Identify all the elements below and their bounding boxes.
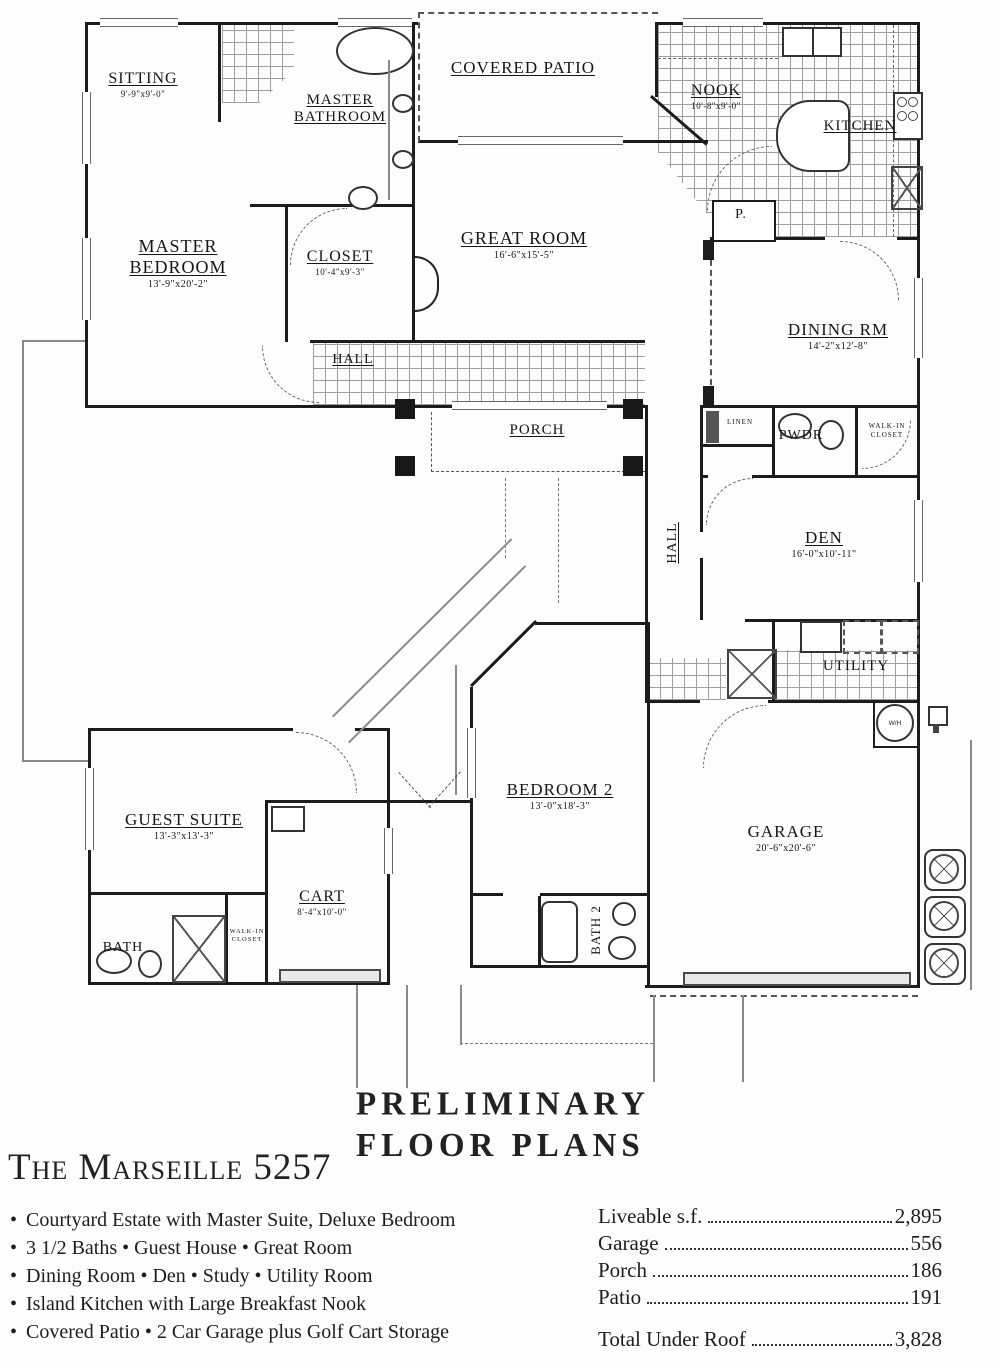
colonnade-dashed-line [710, 240, 712, 405]
vanity-counter [388, 60, 390, 200]
floor-plan-page: W/H SITTING 9'-9"x9'-0" MASTER BATHROOM … [0, 0, 1000, 1368]
water-heater-label: W/H [889, 720, 902, 727]
window-marker [338, 18, 412, 27]
bullet-icon: • [10, 1234, 17, 1262]
window-marker [452, 401, 607, 410]
window-marker [683, 18, 763, 27]
porch-column [395, 399, 415, 419]
colonnade-post [703, 240, 714, 260]
garbage-can-icon [924, 896, 966, 938]
window-marker [82, 92, 91, 164]
wall-segment [265, 800, 390, 803]
driveway-line [356, 985, 358, 1088]
feature-text: Courtyard Estate with Master Suite, Delu… [26, 1206, 455, 1234]
room-dims: 13'-3"x13'-3" [125, 831, 243, 842]
sink-icon [612, 902, 636, 926]
room-dims: 20'-6"x20'-6" [748, 843, 825, 854]
cart-garage-door [279, 969, 381, 983]
room-name: GARAGE [748, 822, 825, 842]
feature-item: • Courtyard Estate with Master Suite, De… [10, 1206, 550, 1234]
wall-segment [310, 340, 645, 343]
hose-bib-icon [928, 706, 948, 726]
room-label-utility: UTILITY [823, 658, 889, 675]
wall-segment [855, 408, 858, 475]
shower-icon [172, 915, 226, 983]
kitchen-sink-icon [782, 27, 816, 57]
room-label-master-bathroom: MASTER BATHROOM [288, 92, 393, 126]
side-path-line [970, 740, 972, 990]
feature-item: • Covered Patio • 2 Car Garage plus Golf… [10, 1318, 550, 1346]
room-label-great-room: GREAT ROOM 16'-6"x15'-5" [461, 228, 587, 261]
courtyard-wall [22, 340, 85, 342]
window-marker [458, 136, 623, 145]
wall-segment [645, 700, 700, 703]
hose-bib-icon [933, 724, 939, 733]
room-name: P. [735, 207, 747, 223]
window-marker [85, 768, 94, 850]
can-lid-icon [929, 854, 959, 884]
feature-text: 3 1/2 Baths • Guest House • Great Room [26, 1234, 352, 1262]
burner-icon [897, 97, 907, 107]
room-dims: 13'-0"x18'-3" [507, 801, 614, 812]
bullet-icon: • [10, 1290, 17, 1318]
refrigerator-icon [891, 166, 923, 210]
patio-roofline [418, 12, 420, 142]
bullet-icon: • [10, 1262, 17, 1290]
wall-segment [473, 893, 503, 896]
room-dims: 10'-4"x9'-3" [307, 267, 373, 277]
room-name: BATH [103, 940, 144, 956]
window-marker [82, 238, 91, 320]
burner-icon [897, 111, 907, 121]
wall-segment [85, 22, 88, 408]
room-dims: 10'-8"x9'-0" [691, 101, 741, 111]
bathtub-icon [541, 901, 578, 963]
wall-niche [415, 256, 439, 312]
wall-segment [265, 800, 268, 985]
room-label-guest-walkin: WALK-IN CLOSET [227, 928, 267, 944]
room-dims: 14'-2"x12'-8" [788, 341, 888, 352]
room-name: MASTER BATHROOM [288, 92, 393, 126]
sink-icon [392, 150, 414, 169]
wall-segment [703, 444, 775, 447]
room-name: DEN [805, 528, 843, 548]
feature-text: Covered Patio • 2 Car Garage plus Golf C… [26, 1318, 449, 1346]
wall-segment [772, 408, 775, 475]
stat-value: 3,828 [895, 1326, 942, 1353]
bullet-icon: • [10, 1206, 17, 1234]
door-arc [840, 241, 899, 300]
driveway-line [406, 985, 408, 1088]
stat-value: 556 [911, 1230, 943, 1257]
room-name: KITCHEN [824, 118, 897, 135]
room-name: GREAT ROOM [461, 228, 587, 249]
wall-segment [540, 893, 650, 896]
room-label-covered-patio: COVERED PATIO [451, 58, 595, 78]
stat-value: 2,895 [895, 1203, 942, 1230]
room-label-hall-side: HALL [665, 522, 681, 563]
room-name: UTILITY [823, 658, 889, 675]
room-label-linen: LINEN [727, 418, 753, 426]
stove-icon [893, 92, 923, 140]
room-label-den: DEN 16'-0"x10'-11" [791, 528, 856, 560]
garage-door [683, 972, 911, 986]
stat-label: Liveable s.f. [598, 1203, 702, 1230]
colonnade-post [703, 386, 714, 406]
washer-icon [843, 620, 882, 654]
room-name: WALK-IN CLOSET [865, 422, 909, 440]
toilet-icon [348, 186, 378, 210]
wall-segment [218, 22, 221, 122]
room-dims: 8'-4"x10'-0" [297, 907, 347, 917]
porch-column [395, 456, 415, 476]
room-label-bath2: BATH 2 [588, 905, 604, 955]
stat-row-total: Total Under Roof 3,828 [598, 1326, 942, 1353]
window-marker [914, 500, 923, 582]
walkway-dashed [460, 1043, 653, 1044]
kitchen-sink-icon [812, 27, 842, 57]
preliminary-stamp: PRELIMINARY FLOOR PLANS [356, 1083, 650, 1166]
room-dims: 13'-9"x20'-2" [113, 279, 243, 290]
feature-item: • 3 1/2 Baths • Guest House • Great Room [10, 1234, 550, 1262]
courtyard-wall [22, 760, 88, 762]
utility-sink-icon [800, 621, 842, 653]
room-name: CLOSET [307, 248, 373, 266]
wall-segment [473, 965, 650, 968]
porch-column [623, 456, 643, 476]
room-name: HALL [665, 522, 681, 563]
feature-item: • Dining Room • Den • Study • Utility Ro… [10, 1262, 550, 1290]
linen-shelf [706, 411, 719, 443]
burner-icon [908, 97, 918, 107]
kitchen-counter-dashed [658, 58, 778, 59]
wall-segment [873, 746, 919, 748]
door-arc [706, 478, 753, 525]
dryer-icon [881, 620, 919, 654]
wall-segment [700, 408, 703, 532]
door-arc [703, 705, 766, 768]
dot-leader [647, 1302, 907, 1304]
sink-icon [392, 94, 414, 113]
room-label-pantry: P. [735, 207, 747, 223]
window-marker [914, 278, 923, 358]
feature-list: • Courtyard Estate with Master Suite, De… [10, 1206, 550, 1346]
room-label-sitting: SITTING 9'-9"x9'-0" [108, 70, 177, 99]
wall-segment [752, 475, 920, 478]
wall-segment [88, 728, 91, 985]
room-name: NOOK [691, 82, 741, 100]
window-marker [384, 828, 393, 874]
bathtub-icon [336, 27, 414, 75]
room-name: COVERED PATIO [451, 58, 595, 78]
wall-segment [700, 558, 703, 620]
stat-row: Liveable s.f. 2,895 [598, 1203, 942, 1230]
room-dims: 16'-0"x10'-11" [791, 549, 856, 560]
stat-value: 186 [911, 1257, 943, 1284]
wall-segment [700, 405, 920, 408]
feature-text: Dining Room • Den • Study • Utility Room [26, 1262, 373, 1290]
wall-segment [250, 204, 415, 207]
room-name: DINING RM [788, 320, 888, 340]
wall-segment [768, 700, 920, 703]
room-name: BATH 2 [588, 905, 604, 955]
porch-column [623, 399, 643, 419]
room-label-nook: NOOK 10'-8"x9'-0" [691, 82, 741, 111]
room-label-powder: PWDR [779, 428, 823, 444]
cart-shelf [271, 806, 305, 832]
stat-label: Patio [598, 1284, 641, 1311]
dot-leader [708, 1221, 891, 1223]
wall-segment [655, 22, 658, 97]
wall-segment [535, 622, 650, 625]
room-name: SITTING [108, 70, 177, 88]
room-name: CART [299, 888, 345, 906]
room-name: LINEN [727, 418, 753, 426]
room-name: BEDROOM 2 [507, 780, 614, 800]
wall-segment [88, 728, 293, 731]
courtyard-diagonal-walk [332, 538, 512, 717]
stat-label: Total Under Roof [598, 1326, 746, 1353]
garbage-can-icon [924, 849, 966, 891]
wall-segment [85, 405, 313, 408]
water-heater-icon: W/H [876, 704, 914, 742]
driveway-line [460, 985, 462, 1045]
room-name: PWDR [779, 428, 823, 444]
wall-segment [88, 892, 268, 895]
stamp-line1: PRELIMINARY [356, 1083, 650, 1125]
room-dims: 16'-6"x15'-5" [461, 250, 587, 261]
master-shower-tile [222, 25, 294, 103]
room-label-cart: CART 8'-4"x10'-0" [297, 888, 347, 917]
stat-row: Porch 186 [598, 1257, 942, 1284]
room-label-hall: HALL [332, 352, 373, 368]
garage-entry-tile-floor [648, 658, 726, 700]
room-label-closet: CLOSET 10'-4"x9'-3" [307, 248, 373, 277]
wall-segment [647, 622, 650, 985]
room-name: PORCH [509, 422, 564, 439]
plan-title: The Marseille 5257 [8, 1146, 331, 1189]
patio-roofline [418, 12, 658, 14]
courtyard-wall [22, 340, 24, 760]
room-label-porch: PORCH [509, 422, 564, 439]
room-label-garage: GARAGE 20'-6"x20'-6" [748, 822, 825, 854]
area-stats-table: Liveable s.f. 2,895 Garage 556 Porch 186… [598, 1203, 942, 1353]
toilet-icon [608, 936, 636, 960]
burner-icon [908, 111, 918, 121]
feature-text: Island Kitchen with Large Breakfast Nook [26, 1290, 366, 1318]
garage-apron-dashed [650, 995, 918, 997]
room-label-bedroom2: BEDROOM 2 13'-0"x18'-3" [507, 780, 614, 812]
driveway-line [653, 995, 655, 1082]
can-lid-icon [929, 948, 959, 978]
porch-outline [431, 471, 645, 472]
room-label-kitchen: KITCHEN [824, 118, 897, 135]
dot-leader [653, 1275, 908, 1277]
door-arc [262, 346, 319, 403]
porch-outline [431, 412, 432, 472]
garbage-can-icon [924, 943, 966, 985]
room-label-master-bedroom: MASTER BEDROOM 13'-9"x20'-2" [113, 236, 243, 290]
stat-row: Garage 556 [598, 1230, 942, 1257]
stat-label: Porch [598, 1257, 647, 1284]
stat-row: Patio 191 [598, 1284, 942, 1311]
wall-segment [873, 700, 875, 748]
room-label-dining: DINING RM 14'-2"x12'-8" [788, 320, 888, 352]
courtyard-step-dashed [558, 478, 559, 603]
room-name: HALL [332, 352, 373, 368]
room-dims: 9'-9"x9'-0" [108, 89, 177, 99]
coat-closet-icon [727, 649, 777, 699]
wall-segment [285, 204, 288, 342]
window-marker [100, 18, 178, 27]
driveway-line [742, 995, 744, 1082]
stat-label: Garage [598, 1230, 659, 1257]
window-marker [467, 728, 476, 798]
room-name: MASTER BEDROOM [113, 236, 243, 278]
feature-item: • Island Kitchen with Large Breakfast No… [10, 1290, 550, 1318]
dot-leader [665, 1248, 908, 1250]
room-name: WALK-IN CLOSET [227, 928, 267, 944]
room-name: GUEST SUITE [125, 810, 243, 830]
dot-leader [752, 1344, 892, 1346]
room-label-guest-bath: BATH [103, 940, 144, 956]
can-lid-icon [929, 901, 959, 931]
room-label-walkin-den: WALK-IN CLOSET [865, 422, 909, 440]
kitchen-island-icon [776, 100, 850, 172]
wall-diagonal-bedroom2 [470, 620, 537, 687]
bullet-icon: • [10, 1318, 17, 1346]
stamp-line2: FLOOR PLANS [356, 1125, 650, 1167]
stat-value: 191 [911, 1284, 943, 1311]
room-label-guest-suite: GUEST SUITE 13'-3"x13'-3" [125, 810, 243, 842]
